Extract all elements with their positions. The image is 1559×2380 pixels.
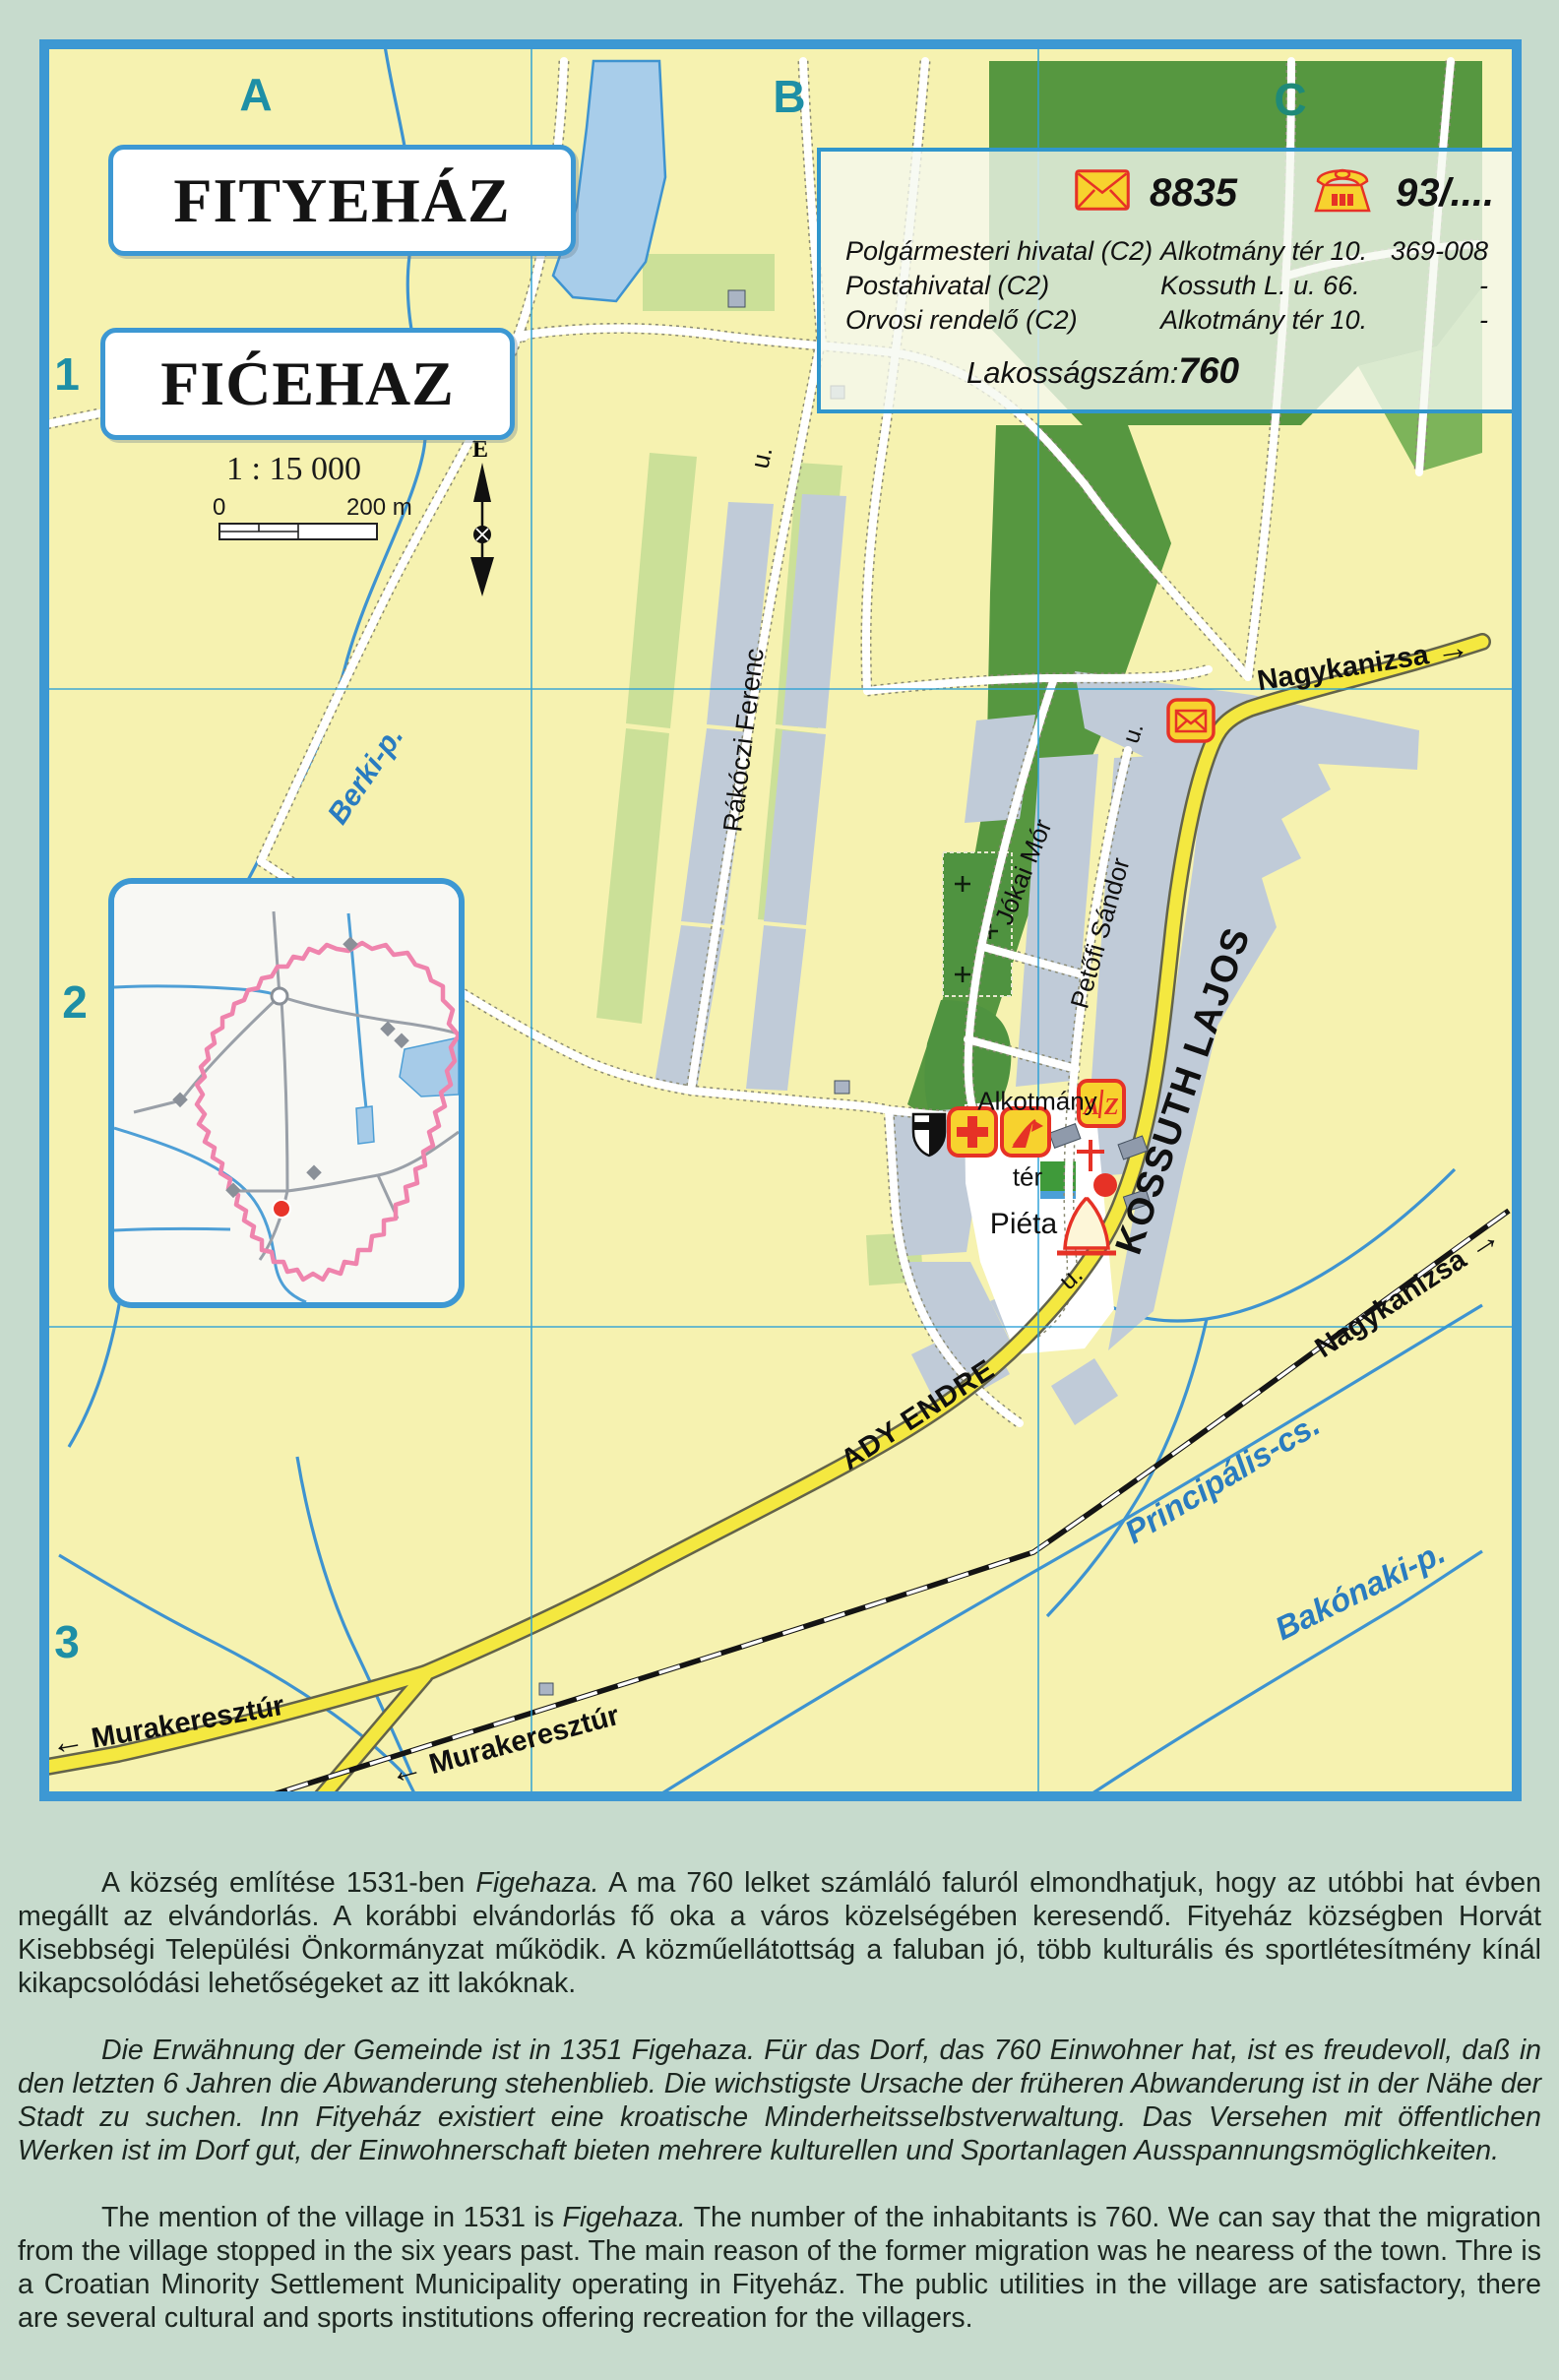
inset-town-junction [272,988,287,1004]
grid-col-a: A [239,68,272,121]
directory-name: Polgármesteri hivatal (C2) [845,236,1153,267]
scale-zero: 0 [213,494,225,522]
town-name-hungarian-box: FITYEHÁZ [108,145,576,256]
map-panel: A Z A B C 1 2 3 [39,39,1522,1801]
paragraph-text: The mention of the village in 1531 is [101,2202,562,2233]
population-line: Lakosságszám:760 [967,350,1239,392]
grid-row-1: 1 [54,347,80,401]
town-name-croatian-box: FIĆEHAZ [100,328,515,440]
directory-address: Kossuth L. u. 66. [1160,271,1360,301]
paragraph-hungarian: A község említése 1531-ben Figehaza. A m… [18,1866,1541,2000]
grid-col-b: B [773,70,805,123]
postal-envelope-icon [1075,167,1130,213]
inset-locator-map [108,878,465,1308]
population-value: 760 [1178,350,1239,391]
north-arrow-icon [470,463,494,596]
town-name-hungarian: FITYEHÁZ [173,164,510,237]
inset-svg [114,884,459,1302]
post-office-icon [1168,700,1214,741]
arrow-right-icon: → [1433,628,1472,670]
scale-bar [219,524,377,539]
library-icon-letter-z: Z [1103,1095,1119,1120]
scale-end: 200 m [346,494,412,522]
paragraph-italic-name: Figehaza. [562,2202,685,2233]
grid-row-3: 3 [54,1615,80,1668]
square-label-ter: tér [1013,1162,1042,1193]
grid-col-c: C [1274,73,1306,126]
scale-ratio: 1 : 15 000 [226,451,361,488]
inset-village-marker [273,1200,290,1218]
directory-phone: 369-008 [1362,236,1488,267]
directory-phone: - [1362,305,1488,336]
town-name-croatian: FIĆEHAZ [160,347,455,420]
atlas-page: A Z A B C 1 2 3 [0,0,1559,2380]
bakonaki-stream [1081,1551,1482,1801]
directory-phone: - [1362,271,1488,301]
square-label-alkotmany: Alkotmány [977,1087,1096,1117]
paragraph-german: Die Erwähnung der Gemeinde ist in 1351 F… [18,2034,1541,2167]
arrow-left-icon: ← [47,1721,87,1763]
phone-icon [1311,165,1374,215]
postal-code: 8835 [1150,171,1237,216]
paragraph-text: A község említése 1531-ben [101,1867,475,1899]
directory-name: Postahivatal (C2) [845,271,1049,301]
directory-name: Orvosi rendelő (C2) [845,305,1078,336]
paragraph-italic-name: Figehaza. [475,1867,598,1899]
paragraph-english: The mention of the village in 1531 is Fi… [18,2201,1541,2335]
north-label: É [472,437,488,464]
directory-address: Alkotmány tér 10. [1160,236,1367,267]
town-infobox: 8835 93/.... Polgármesteri hivatal (C2) … [817,148,1516,413]
grid-row-2: 2 [62,975,88,1029]
monument-label-pieta: Piéta [990,1208,1057,1241]
population-label: Lakosságszám: [967,355,1178,390]
description-paragraphs: A község említése 1531-ben Figehaza. A m… [18,1866,1541,2368]
directory-address: Alkotmány tér 10. [1160,305,1367,336]
phone-prefix: 93/.... [1396,171,1494,216]
